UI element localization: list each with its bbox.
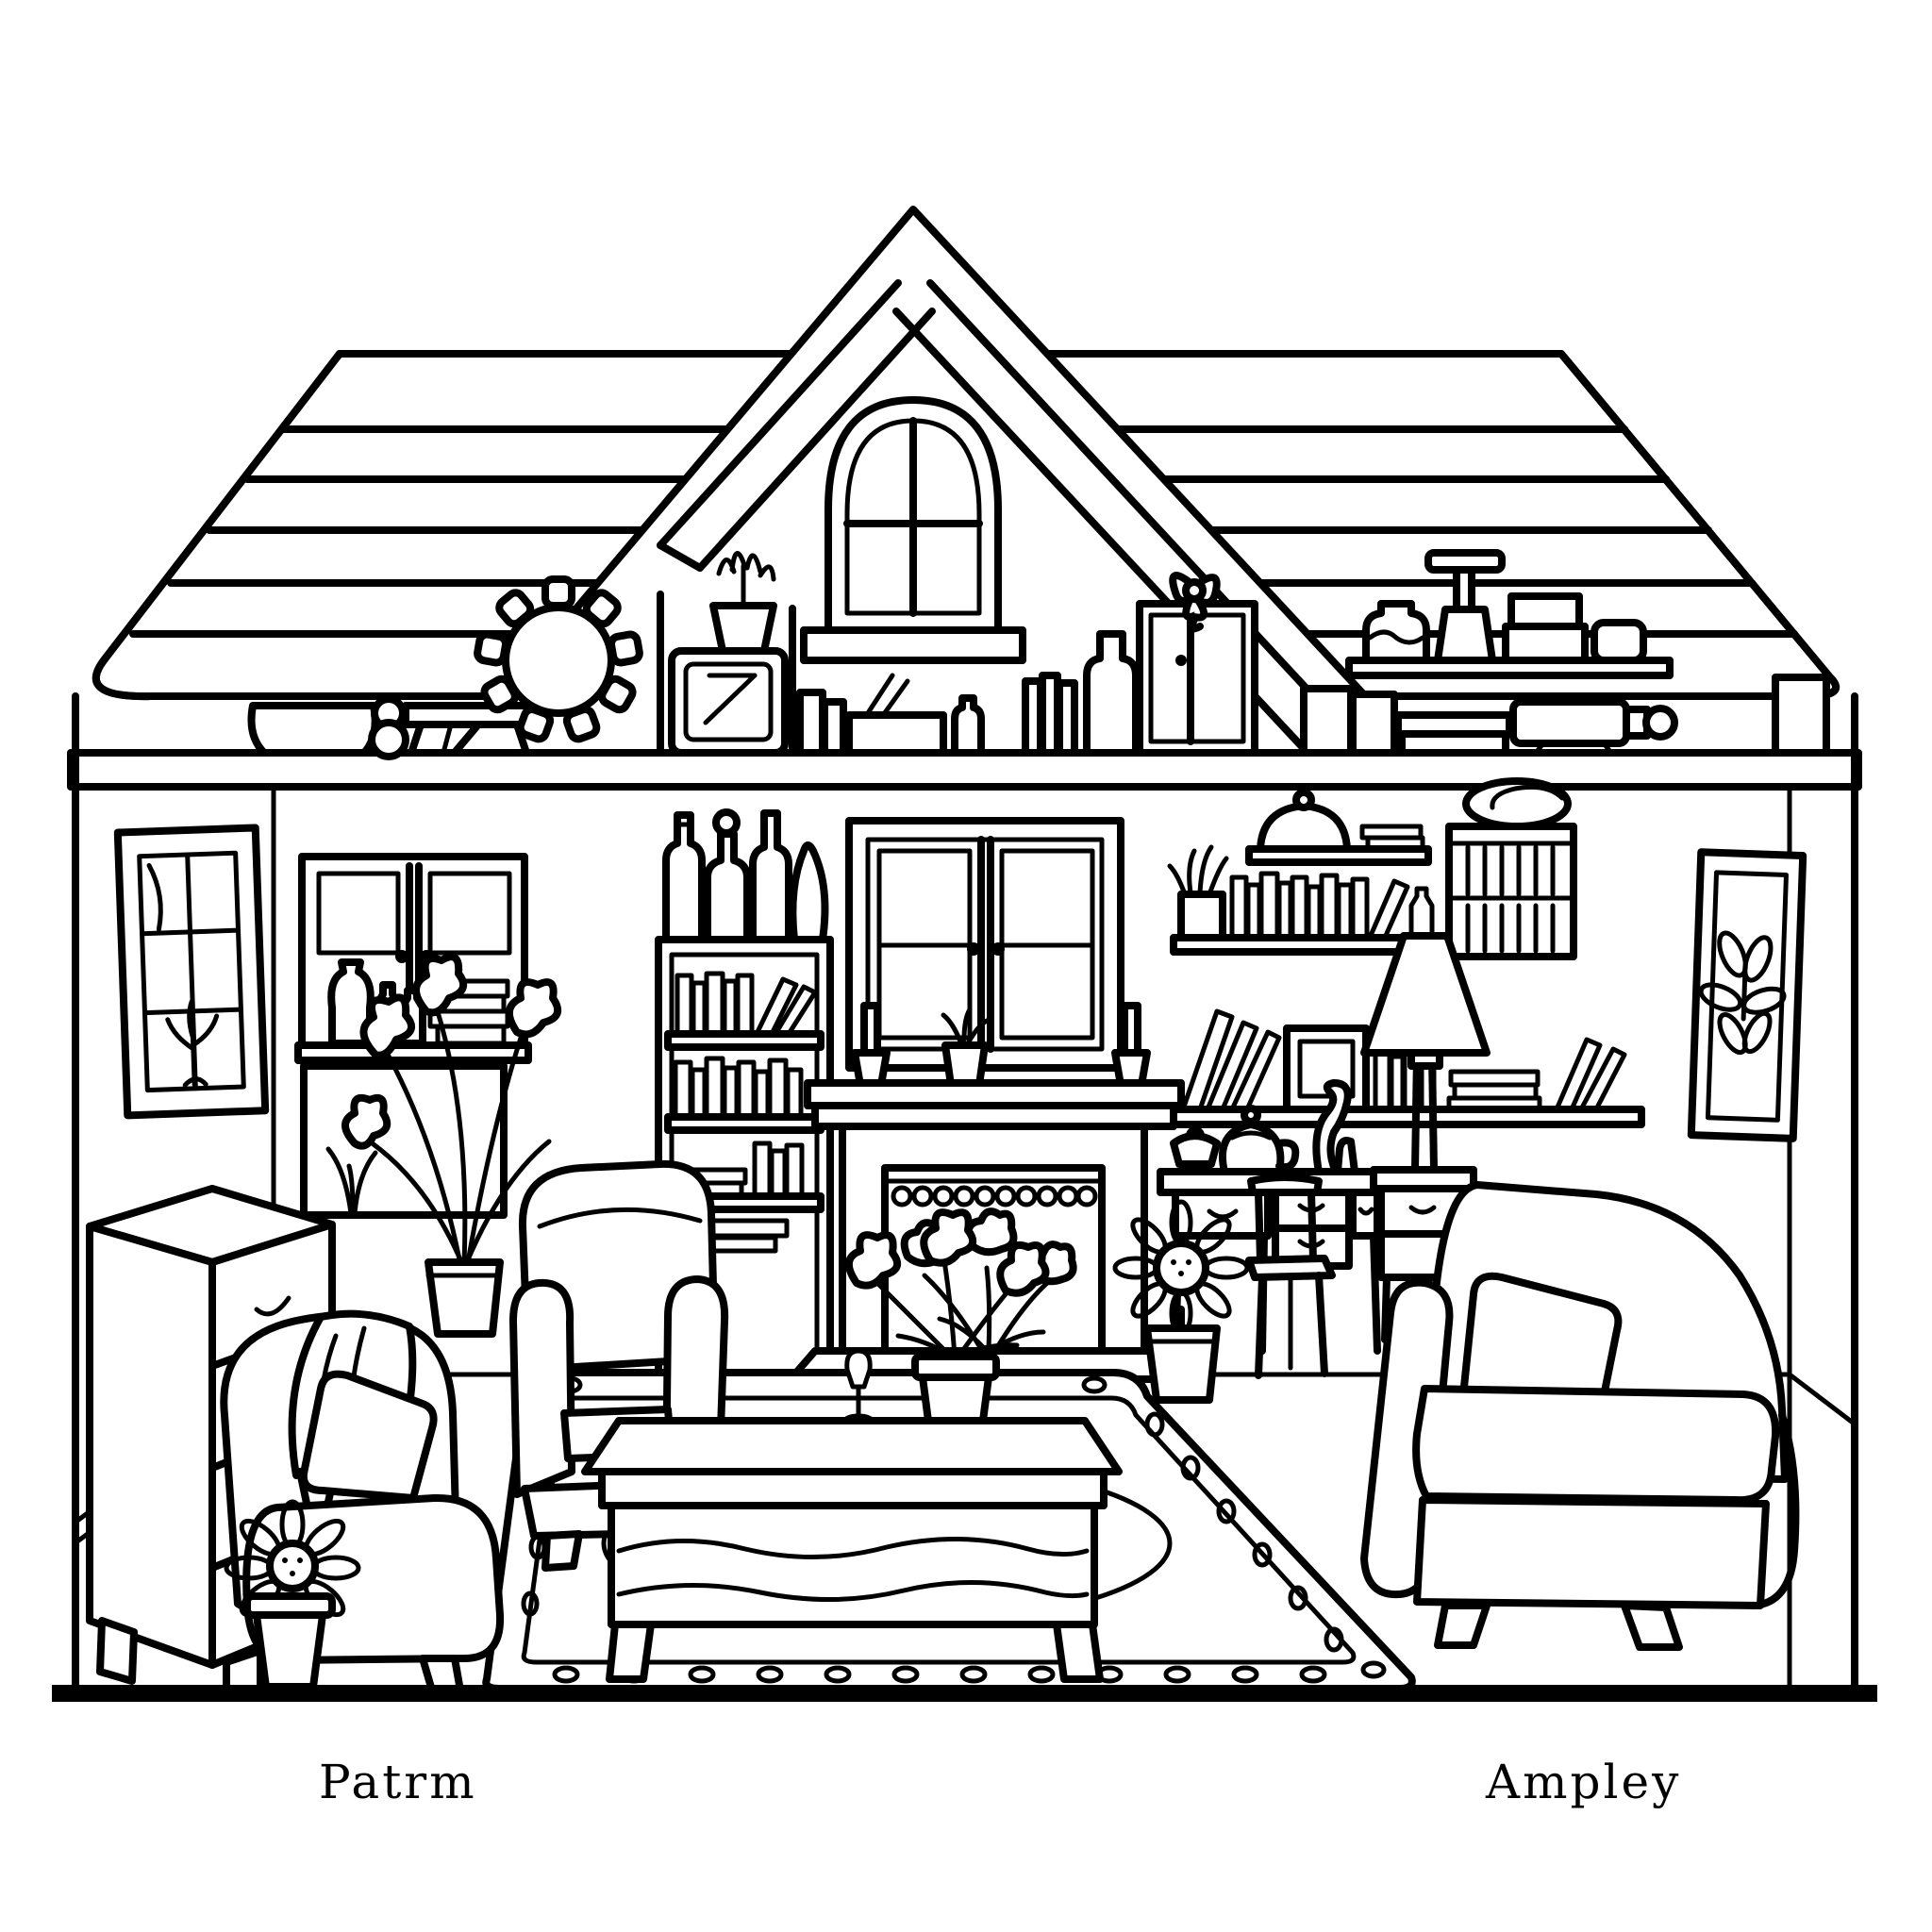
right-floor-diagonal <box>1790 1374 1853 1423</box>
attic-books-left <box>800 692 843 753</box>
sofa-seat-cushion <box>1416 1389 1775 1500</box>
canister <box>1775 677 1826 753</box>
table-skirt <box>611 1506 1094 1624</box>
caption-right: Ampley <box>1485 1755 1681 1809</box>
coloring-page-illustration: Patrm Ampley <box>0 0 1932 1932</box>
attic-window-sill <box>804 630 1023 660</box>
house-base-line <box>52 1685 1877 1702</box>
photo-frame <box>1287 1028 1366 1109</box>
mantel-shelf-face <box>815 1106 1174 1126</box>
plant-pot-on-stand <box>713 553 774 651</box>
slatted-hutch <box>1449 781 1574 957</box>
coloring-page: Patrm Ampley <box>0 0 1932 1932</box>
right-picture-frame <box>1691 852 1803 1139</box>
attic-floor-band <box>71 753 1858 787</box>
caption-left: Patrm <box>319 1755 477 1809</box>
table-flower-pot <box>915 1357 996 1421</box>
shelf-plant <box>1170 847 1226 938</box>
chair-left-arm <box>513 1283 572 1494</box>
top-shelf <box>1249 792 1428 862</box>
cloche <box>1260 806 1347 849</box>
bowl <box>252 706 375 753</box>
stacked-balls-figure-base <box>372 723 406 757</box>
left-framed-window <box>118 827 265 1115</box>
table-lamp <box>1364 936 1487 1170</box>
table-top <box>585 1421 1119 1472</box>
iris-pot <box>428 1262 500 1334</box>
honey-jar <box>1366 604 1426 660</box>
leaning-books <box>1025 675 1074 753</box>
table-apron <box>602 1472 1104 1506</box>
telescope <box>1513 702 1674 753</box>
small-bottle <box>955 698 981 753</box>
lidded-bowl <box>1174 1130 1217 1172</box>
center-window <box>849 821 1121 1068</box>
bottles-on-bookcase <box>666 812 824 940</box>
shell-ornament <box>1466 781 1568 826</box>
sofa-base <box>1417 1500 1766 1606</box>
lily-3 <box>509 982 558 1034</box>
bookcase-row-1 <box>677 974 815 1034</box>
wardrobe <box>1140 575 1255 753</box>
dresser-side <box>90 1226 212 1665</box>
